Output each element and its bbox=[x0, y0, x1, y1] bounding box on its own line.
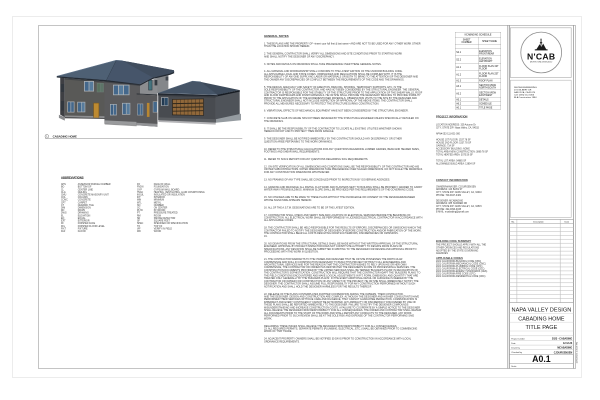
svg-text:Date: Date bbox=[511, 342, 516, 345]
svg-text:Drawn by: Drawn by bbox=[511, 348, 519, 350]
svg-text:12.12.23: 12.12.23 bbox=[563, 342, 573, 345]
svg-text:CJOURGENSEN: CJOURGENSEN bbox=[554, 351, 573, 354]
svg-text:CABADING HOME: CABADING HOME bbox=[518, 316, 565, 322]
svg-text:TITLE PAGE: TITLE PAGE bbox=[525, 325, 557, 331]
svg-text:NAPA VALLEY DESIGN: NAPA VALLEY DESIGN bbox=[512, 308, 572, 314]
svg-text:2023 - CABADING: 2023 - CABADING bbox=[552, 337, 572, 340]
svg-text:N'CAB: N'CAB bbox=[527, 52, 555, 62]
svg-text:No.: No. bbox=[511, 221, 515, 223]
svg-text:12/15/2023 1:46:09 PM: 12/15/2023 1:46:09 PM bbox=[577, 342, 579, 364]
svg-text:Project number: Project number bbox=[511, 337, 525, 340]
svg-text:Date: Date bbox=[565, 220, 570, 223]
svg-text:Checked by: Checked by bbox=[511, 352, 522, 354]
svg-text:CABADING HOME: CABADING HOME bbox=[53, 134, 77, 138]
svg-text:MCABADING: MCABADING bbox=[557, 347, 572, 350]
svg-text:A0.1: A0.1 bbox=[532, 354, 551, 364]
svg-text:Scale: Scale bbox=[511, 366, 517, 368]
svg-text:Description: Description bbox=[533, 220, 544, 223]
